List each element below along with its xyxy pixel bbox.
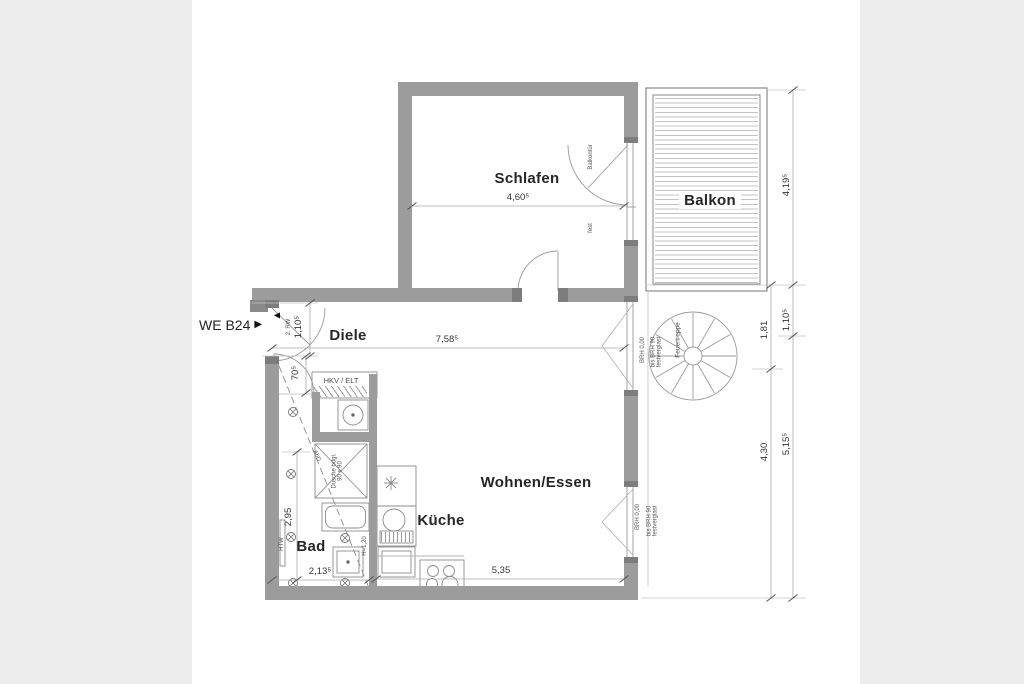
sill-note-upper-line1: bis BRH 90 xyxy=(651,337,657,367)
entry-marker-icon: ▶ xyxy=(254,320,262,331)
dim-schlafen-width: 4,60⁵ xyxy=(507,193,529,203)
door-swings xyxy=(272,145,628,394)
dim-inner-upper: 1,81 xyxy=(760,321,770,340)
sill-note-lower: bis BRH 90 festverglast xyxy=(647,506,660,537)
dim-stair-gap: 1,10⁵ xyxy=(782,309,792,331)
rescue-route-label: 2. RW xyxy=(286,319,292,336)
dim-bad-width: 2,13⁵ xyxy=(309,567,331,577)
half-wall-height-label: H=1,20 xyxy=(362,536,368,556)
sill-note-lower-line2: festverglast xyxy=(653,506,659,537)
closet-front-hatch xyxy=(314,386,367,397)
dim-balkon-height: 4,19⁵ xyxy=(782,174,792,196)
floor-plan-drawing xyxy=(0,0,1024,684)
fixed-glazing-label: fest xyxy=(588,223,594,233)
room-label-wohnen: Wohnen/Essen xyxy=(481,475,592,491)
unit-label-text: WE B24 xyxy=(199,318,250,333)
sink-drainer-hatch xyxy=(381,532,412,542)
stair-label: Feuertreppe xyxy=(674,322,681,357)
closet-label: HKV / ELT xyxy=(324,377,359,385)
balcony-door-label: Balkontür xyxy=(588,144,594,169)
sill-height-lower: BRH 0,00 xyxy=(635,504,641,530)
floor-plan-page: WE B24 ▶ Schlafen Balkon Diele Wohnen/Es… xyxy=(0,0,1024,684)
room-label-schlafen: Schlafen xyxy=(495,171,560,187)
dim-bad-door: 70⁵ xyxy=(291,366,301,381)
sill-note-lower-line1: bis BRH 90 xyxy=(647,506,653,536)
dim-bad-height: 2,95 xyxy=(284,508,294,527)
dim-wohnen-width: 5,35 xyxy=(492,566,511,576)
unit-label: WE B24 ▶ xyxy=(199,318,262,333)
rescue-route-marker-icon: ◀ xyxy=(274,312,280,321)
room-label-bad: Bad xyxy=(296,539,325,555)
dim-diele-width: 7,58⁵ xyxy=(436,335,458,345)
shower-label: Dusche bdgl. 90 x 90 xyxy=(332,453,345,488)
dim-entry-width: 1,10⁵ xyxy=(294,316,304,338)
sill-note-upper-line2: festverglast xyxy=(657,337,663,368)
room-label-balkon: Balkon xyxy=(679,193,741,209)
towel-radiator-label: HTW xyxy=(279,537,285,551)
shower-label-line2: 90 x 90 xyxy=(338,461,344,481)
sill-note-upper: bis BRH 90 festverglast xyxy=(651,337,664,368)
windows xyxy=(602,143,636,557)
dim-outer-lower: 5,15⁵ xyxy=(782,433,792,455)
room-label-diele: Diele xyxy=(329,328,366,344)
shower-label-line1: Dusche bdgl. xyxy=(332,453,338,488)
balcony-floor-hatch xyxy=(655,98,758,283)
kitchen-fixtures xyxy=(377,466,464,593)
dim-inner-lower: 4,30 xyxy=(760,443,770,462)
room-label-kueche: Küche xyxy=(417,513,464,529)
sill-height-upper: BRH 0,00 xyxy=(640,337,646,363)
